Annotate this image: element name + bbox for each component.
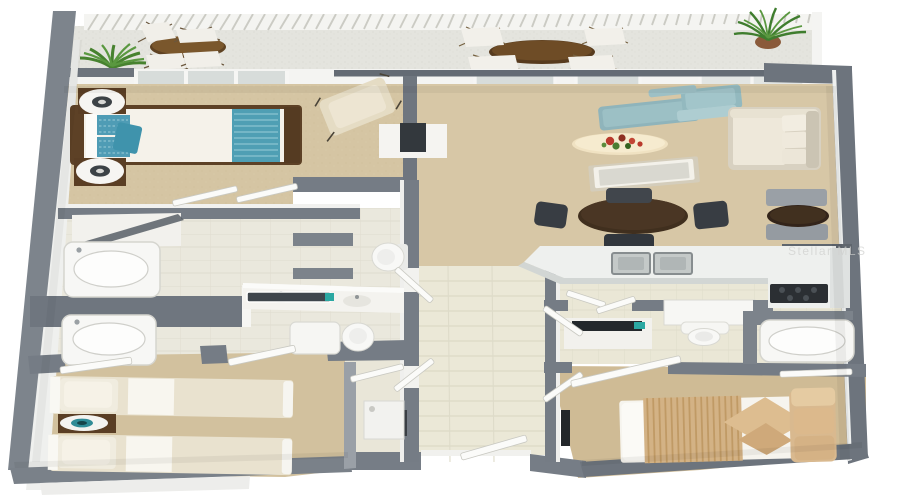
- svg-text:Stellar MLS: Stellar MLS: [788, 244, 867, 258]
